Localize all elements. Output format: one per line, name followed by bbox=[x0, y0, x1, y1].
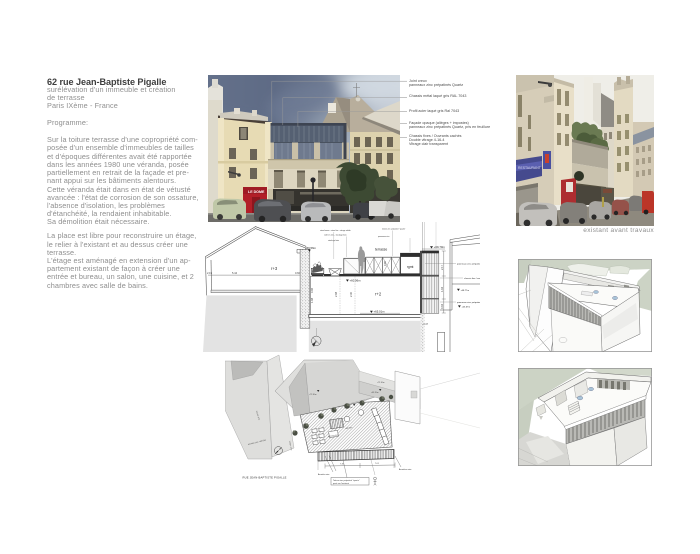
svg-text:panneaux zinc prépatiné Quartz: panneaux zinc prépatiné Quartz bbox=[457, 263, 480, 266]
svg-text:-3.47: -3.47 bbox=[423, 323, 429, 326]
svg-text:rgmt: rgmt bbox=[407, 265, 413, 269]
svg-text:terrasse: terrasse bbox=[375, 247, 387, 251]
svg-text:2.17: 2.17 bbox=[440, 264, 444, 270]
svg-text:LE DOME: LE DOME bbox=[248, 190, 265, 194]
svg-text:+66.56m: +66.56m bbox=[305, 246, 317, 250]
svg-text:store banne - store fixe - vit: store banne - store fixe - vitrage solid… bbox=[320, 229, 351, 232]
svg-text:r+3: r+3 bbox=[271, 266, 278, 271]
svg-text:+69.63m: +69.63m bbox=[345, 407, 353, 409]
svg-text:1.94: 1.94 bbox=[440, 286, 444, 292]
svg-text:panneaux zinc prépatiné Quartz: panneaux zinc prépatiné Quartz bbox=[457, 301, 480, 304]
svg-text:volet en zinc - stockage bois: volet en zinc - stockage bois bbox=[324, 234, 347, 237]
svg-text:+65.67m: +65.67m bbox=[462, 307, 471, 309]
svg-text:+72.10m: +72.10m bbox=[377, 382, 385, 384]
svg-text:N: N bbox=[315, 341, 317, 344]
svg-text:stockage bois: stockage bois bbox=[328, 239, 339, 242]
svg-text:+69.70m: +69.70m bbox=[371, 392, 379, 394]
svg-text:2.98: 2.98 bbox=[334, 291, 338, 297]
svg-text:chassis fixe / ouvrant caché: chassis fixe / ouvrant caché bbox=[464, 277, 480, 280]
svg-text:posé sur l'existant: posé sur l'existant bbox=[333, 482, 349, 485]
svg-text:Acrotère zinc: Acrotère zinc bbox=[318, 473, 330, 476]
svg-text:1.98: 1.98 bbox=[310, 297, 314, 303]
svg-text:+68.77m: +68.77m bbox=[461, 290, 470, 292]
svg-text:0.96: 0.96 bbox=[384, 261, 387, 266]
svg-text:RESTAURANT: RESTAURANT bbox=[518, 166, 541, 170]
svg-text:+65.01m: +65.01m bbox=[374, 310, 386, 314]
svg-text:0.94: 0.94 bbox=[440, 303, 444, 309]
svg-text:toiture zinc prépatiné "quartz: toiture zinc prépatiné "quartz" bbox=[382, 228, 406, 231]
svg-text:RUE JEAN-BAPTISTE PIGALLE: RUE JEAN-BAPTISTE PIGALLE bbox=[243, 476, 287, 480]
svg-text:+60.06m: +60.06m bbox=[350, 278, 362, 282]
svg-text:0.96: 0.96 bbox=[310, 287, 314, 293]
svg-text:r+2: r+2 bbox=[375, 292, 382, 297]
svg-text:panneaux zinc: panneaux zinc bbox=[378, 236, 390, 238]
svg-text:5.44: 5.44 bbox=[232, 271, 238, 275]
svg-text:2.30: 2.30 bbox=[349, 291, 353, 297]
svg-text:Toiture zinc prépatiné "quartz: Toiture zinc prépatiné "quartz" bbox=[333, 479, 360, 482]
svg-text:+69.70m: +69.70m bbox=[434, 245, 446, 249]
svg-text:0.60: 0.60 bbox=[295, 271, 301, 275]
svg-text:2.15: 2.15 bbox=[207, 271, 213, 275]
svg-text:+72.30m: +72.30m bbox=[309, 394, 317, 396]
svg-text:Acrotères zinc: Acrotères zinc bbox=[399, 468, 412, 471]
